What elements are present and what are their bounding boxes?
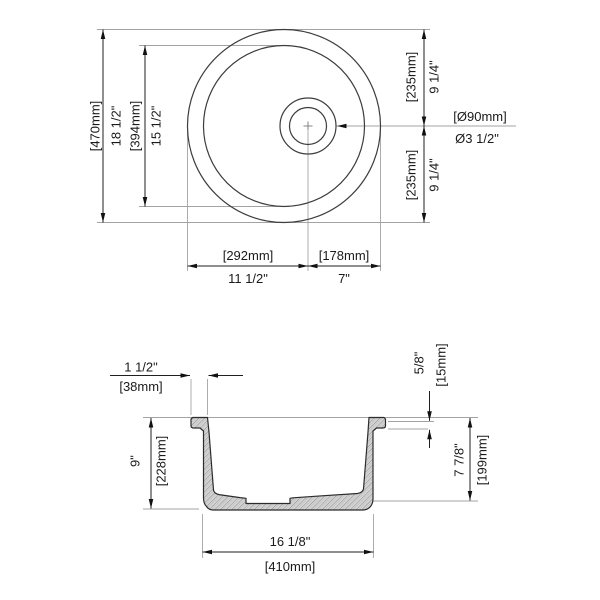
dim-overall-in-label: 18 1/2" xyxy=(109,105,124,146)
dim-height-in-label: 9" xyxy=(128,455,143,467)
dim-upper-right-in-label: 9 1/4" xyxy=(427,60,442,94)
section-view: 1 1/2" [38mm] 9" [228mm] 5/8" [15mm] 7 7… xyxy=(110,343,490,574)
dim-overall-mm-label: [470mm] xyxy=(88,101,103,152)
dim-bottom-left-mm-label: [292mm] xyxy=(223,248,274,263)
dim-lip-mm-label: [38mm] xyxy=(119,379,162,394)
top-view-dimension-lines xyxy=(103,30,516,267)
dim-bottom-right-in-label: 7" xyxy=(338,271,350,286)
sink-drawing-svg: [470mm] 18 1/2" [394mm] 15 1/2" [235mm] … xyxy=(0,0,600,600)
dim-inner-mm-label: [394mm] xyxy=(128,101,143,152)
section-extension-lines xyxy=(143,379,478,558)
dim-height-mm-label: [228mm] xyxy=(154,436,169,487)
dim-lip-in-label: 1 1/2" xyxy=(124,360,158,375)
dim-bottom-right-mm-label: [178mm] xyxy=(319,248,370,263)
dim-depth-mm-label: [199mm] xyxy=(475,435,490,486)
dim-bottom-mm-label: [410mm] xyxy=(265,559,316,574)
dim-lower-right-mm-label: [235mm] xyxy=(404,150,419,201)
dim-lower-right-in-label: 9 1/4" xyxy=(427,158,442,192)
dim-rim-mm-label: [15mm] xyxy=(434,343,449,386)
dim-bottom-in-label: 16 1/8" xyxy=(270,534,311,549)
dim-upper-right-mm-label: [235mm] xyxy=(404,52,419,103)
technical-drawing-canvas: [470mm] 18 1/2" [394mm] 15 1/2" [235mm] … xyxy=(0,0,600,600)
dim-inner-in-label: 15 1/2" xyxy=(149,105,164,146)
sink-section-profile xyxy=(191,418,386,511)
dim-bottom-left-in-label: 11 1/2" xyxy=(228,271,268,286)
top-view-extension-lines xyxy=(97,30,516,272)
dim-drain-in-label: Ø3 1/2" xyxy=(455,131,499,146)
top-view: [470mm] 18 1/2" [394mm] 15 1/2" [235mm] … xyxy=(88,30,517,287)
dim-depth-in-label: 7 7/8" xyxy=(452,443,467,477)
dim-drain-mm-label: [Ø90mm] xyxy=(453,109,506,124)
drain-center-mark xyxy=(304,122,313,131)
dim-rim-in-label: 5/8" xyxy=(412,351,427,374)
